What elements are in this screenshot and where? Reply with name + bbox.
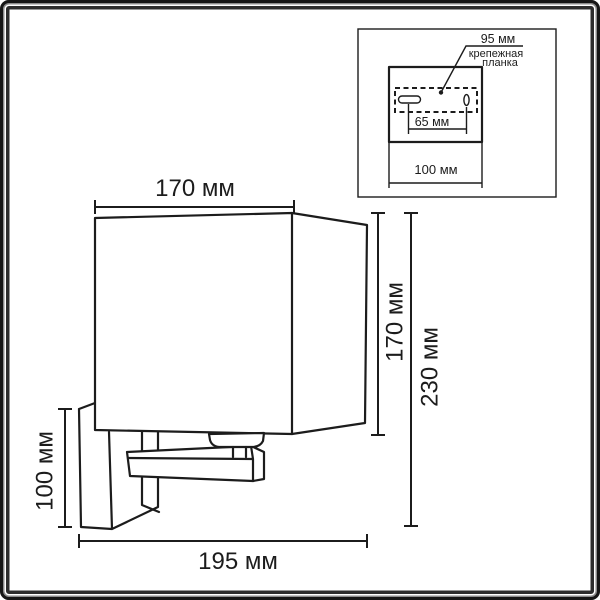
plate-width-dimension: 100 мм: [389, 142, 482, 188]
bracket-caption-line2: планка: [482, 57, 519, 69]
mounting-hole: [464, 95, 469, 106]
sconce-main-view: [79, 213, 367, 529]
overall-depth-dimension-line: [79, 534, 367, 548]
mounting-pitch-label: 95 мм: [481, 32, 516, 46]
mounting-plate-inset: 95 мм крепежная планка 65 мм 100 мм: [358, 29, 556, 197]
mounting-slot: [399, 96, 421, 103]
backplate-height-dimension-label: 100 мм: [31, 431, 58, 511]
shade-width-dimension-label: 170 мм: [155, 175, 235, 202]
socket-cup: [209, 433, 264, 447]
sconce-technical-drawing: 170 мм 170 мм 230 мм 100 мм 195 мм: [0, 0, 600, 600]
overall-height-dimension-label: 230 мм: [416, 327, 443, 407]
shade-height-dimension-label: 170 мм: [381, 282, 408, 362]
overall-depth-dimension: 195 мм: [79, 534, 367, 575]
bracket-arm-body: [127, 446, 264, 481]
lamp-dimension-sheet: 170 мм 170 мм 230 мм 100 мм 195 мм: [0, 0, 600, 600]
hole-spacing-label: 65 мм: [415, 115, 450, 129]
shade-height-dimension: 170 мм: [371, 213, 408, 435]
overall-height-dimension: 230 мм: [404, 213, 443, 526]
overall-depth-dimension-label: 195 мм: [198, 548, 278, 575]
plate-width-label: 100 мм: [414, 162, 457, 177]
cube-shade-silhouette: [95, 213, 367, 434]
backplate-height-dimension-line: [58, 409, 72, 527]
shade-width-dimension-line: [95, 200, 294, 214]
backplate-height-dimension: 100 мм: [31, 409, 72, 527]
hole-spacing-dimension: 65 мм: [409, 104, 467, 134]
shade-width-dimension: 170 мм: [95, 175, 294, 214]
mounting-bracket-dashed-outline: [395, 88, 477, 112]
